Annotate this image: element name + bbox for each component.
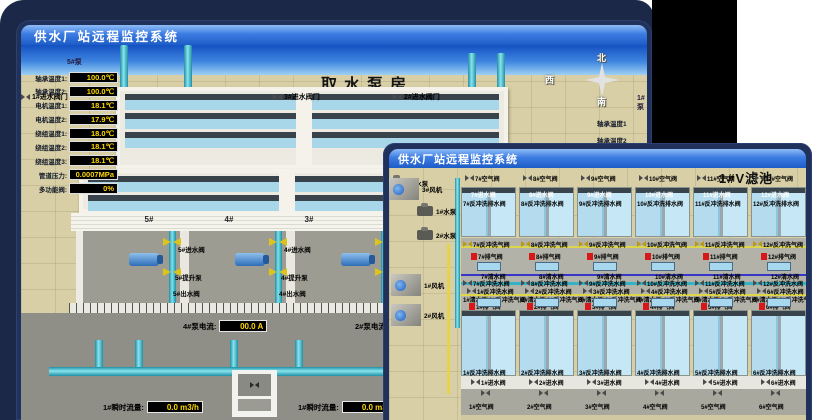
exhaust-valve-label: 11#排气阀 xyxy=(710,252,738,261)
exhaust-valve-label: 7#排气阀 xyxy=(478,252,503,261)
backwash-water-valve-icon[interactable] xyxy=(583,288,592,295)
telemetry-row: 绕组温度1: 18.0℃ xyxy=(27,128,131,139)
bay-number-row: 5# 4# 3# 2# xyxy=(109,215,429,224)
pump-bay: 5#进水阀 5#提升泵 5#出水阀 xyxy=(83,231,189,303)
telemetry-label: 多功能阀: xyxy=(27,184,69,194)
branch-pipe xyxy=(295,340,303,369)
instrument-box[interactable] xyxy=(477,298,501,307)
lift-pump-icon[interactable] xyxy=(129,253,159,266)
air-valve-icon[interactable] xyxy=(655,390,664,397)
water-pipe xyxy=(455,178,460,328)
air-valve-icon[interactable] xyxy=(755,175,764,182)
backwash-air-valve-icon[interactable] xyxy=(521,241,530,248)
exhaust-valve-label: 12#排气阀 xyxy=(768,252,796,261)
riser-pipe xyxy=(184,45,192,91)
compass-north: 北 xyxy=(597,51,606,64)
basin-divider xyxy=(279,169,295,213)
backwash-blower: 2#风机 xyxy=(391,304,444,326)
telemetry-row: 管道压力: 0.0007MPa xyxy=(27,169,131,180)
backwash-pump: 1#水泵 xyxy=(417,206,456,216)
backwash-air-valve-label: 9#反冲洗气阀 xyxy=(589,240,626,249)
exhaust-valve: 10#排气阀 xyxy=(645,252,680,261)
backwash-air-valve: 8#反冲洗气阀 xyxy=(521,240,568,249)
inlet-valve-icon[interactable] xyxy=(645,379,654,386)
air-pipe xyxy=(447,244,450,394)
air-valve-label: 8#空气阀 xyxy=(533,174,558,183)
telemetry-label: 绕组温度2: xyxy=(27,142,69,152)
backwash-equipment-column: 1#水泵 2#水泵 3#水泵 xyxy=(389,178,459,338)
telemetry-value: 18.1℃ xyxy=(69,141,118,152)
backwash-drain-valve-label: 2#反冲洗排水阀 xyxy=(521,368,564,377)
backwash-air-valve-icon[interactable] xyxy=(579,241,588,248)
filter-pool xyxy=(751,310,806,376)
instrument-box[interactable] xyxy=(651,262,675,271)
telemetry-row: 轴承温度2: 100.0℃ xyxy=(27,86,131,97)
exhaust-valve-icon[interactable] xyxy=(701,303,707,310)
backwash-air-valve-label: 8#反冲洗气阀 xyxy=(531,240,568,249)
branch-pipe xyxy=(95,340,103,369)
filter-column: 11#空气阀 11#进水阀 11#反冲洗排水阀 11#反冲洗气阀 xyxy=(693,174,748,420)
instrument-box[interactable] xyxy=(593,298,617,307)
pump5-telemetry-panel: 5#泵 轴承温度1: 100.0℃ 轴承温度2: 100.0℃ xyxy=(27,57,131,197)
inlet-valve-label: 5#进水阀 xyxy=(713,378,738,387)
instrument-box[interactable] xyxy=(767,262,791,271)
exhaust-valve-icon[interactable] xyxy=(761,253,767,260)
exhaust-valve: 12#排气阀 xyxy=(761,252,796,261)
filter-column: 8#空气阀 8#进水阀 8#反冲洗排水阀 8#反冲洗气阀 8 xyxy=(519,174,574,420)
telemetry-label: 绕组温度1: xyxy=(27,128,69,138)
lift-pump-icon[interactable] xyxy=(235,253,265,266)
backwash-air-valve-label: 12#反冲洗气阀 xyxy=(763,240,803,249)
telemetry-row: 多功能阀: 0% xyxy=(27,183,131,194)
inlet-gate: 2#进水阀门 xyxy=(393,92,440,102)
backwash-air-valve-label: 11#反冲洗气阀 xyxy=(705,240,745,249)
air-valve-label: 9#空气阀 xyxy=(591,174,616,183)
inlet-valve-label: 11#进水阀 xyxy=(703,190,731,199)
inlet-valve-icon[interactable] xyxy=(471,379,480,386)
air-valve-label: 4#空气阀 xyxy=(643,402,668,411)
pump-icon[interactable] xyxy=(417,230,433,240)
filter-columns: 7#空气阀 7#进水阀 7#反冲洗排水阀 7#反冲洗气阀 7 xyxy=(461,174,806,420)
air-valve: 8#空气阀 xyxy=(523,174,558,183)
inlet-gate: 3#进水阀门 xyxy=(273,92,320,102)
exhaust-valve-icon[interactable] xyxy=(643,303,649,310)
front-window-scene: 1#V滤池 1#水泵 2#水泵 xyxy=(389,168,806,420)
air-valve-icon[interactable] xyxy=(481,390,490,397)
pump5-panel-rows: 轴承温度1: 100.0℃ 轴承温度2: 100.0℃ 电机温度1: 18.1℃ xyxy=(27,72,131,194)
backwash-water-valve-icon[interactable] xyxy=(525,288,534,295)
backwash-water-valve-icon[interactable] xyxy=(637,280,646,287)
filter-column: 9#空气阀 9#进水阀 9#反冲洗排水阀 9#反冲洗气阀 9 xyxy=(577,174,632,420)
backwash-water-valve-icon[interactable] xyxy=(467,288,476,295)
telemetry-label: 轴承温度2: xyxy=(27,86,69,96)
backwash-drain-valve-label: 7#反冲洗排水阀 xyxy=(463,199,506,208)
exhaust-valve: 11#排气阀 xyxy=(703,252,738,261)
backwash-water-valve-icon[interactable] xyxy=(579,280,588,287)
cabinet-base xyxy=(238,399,271,411)
air-valve-icon[interactable] xyxy=(465,175,474,182)
pump-label: 1#水泵 xyxy=(436,206,456,216)
backwash-drain-valve-label: 10#反冲洗排水阀 xyxy=(637,199,683,208)
filter-pool xyxy=(577,310,632,376)
backwash-air-valve-icon[interactable] xyxy=(463,241,472,248)
scada-desktop: 供水厂站远程监控系统 取水泵房 3#进水阀门 xyxy=(0,0,815,420)
telemetry-row: 绕组温度3: 18.1℃ xyxy=(27,155,131,166)
inlet-valve-icon[interactable] xyxy=(761,379,770,386)
blower-icon[interactable] xyxy=(391,304,421,326)
inlet-valve: 2#进水阀 xyxy=(529,378,564,387)
air-valve: 12#空气阀 xyxy=(755,174,793,183)
flow-readout: 1#瞬时流量: 0.0 m3/h xyxy=(103,401,203,413)
telemetry-value: 18.1℃ xyxy=(69,155,118,166)
inlet-valve-label: 10#进水阀 xyxy=(645,190,673,199)
backwash-water-valve-icon[interactable] xyxy=(463,280,472,287)
telemetry-label: 绕组温度3: xyxy=(27,156,69,166)
bay-number: 4# xyxy=(189,215,269,224)
air-valve-label: 3#空气阀 xyxy=(585,402,610,411)
air-valve: 9#空气阀 xyxy=(581,174,616,183)
filter-pool xyxy=(693,310,748,376)
backwash-drain-valve-label: 1#反冲洗排水阀 xyxy=(463,368,506,377)
instrument-box[interactable] xyxy=(709,262,733,271)
air-valve-label: 1#空气阀 xyxy=(469,402,494,411)
filter-column: 7#空气阀 7#进水阀 7#反冲洗排水阀 7#反冲洗气阀 7 xyxy=(461,174,516,420)
telemetry-value: 100.0℃ xyxy=(69,72,118,83)
backwash-air-valve-label: 7#反冲洗气阀 xyxy=(473,240,510,249)
backwash-air-valve: 9#反冲洗气阀 xyxy=(579,240,626,249)
backwash-drain-valve-label: 12#反冲洗排水阀 xyxy=(753,199,799,208)
air-valve-label: 2#空气阀 xyxy=(527,402,552,411)
branch-pipe xyxy=(230,340,238,369)
exhaust-valve-icon[interactable] xyxy=(471,253,477,260)
backwash-air-valve-icon[interactable] xyxy=(637,241,646,248)
instrument-box[interactable] xyxy=(767,298,791,307)
backwash-drain-valve-label: 4#反冲洗排水阀 xyxy=(637,368,680,377)
backwash-drain-valve-label: 3#反冲洗排水阀 xyxy=(579,368,622,377)
backwash-water-valve-icon[interactable] xyxy=(521,280,530,287)
telemetry-value: 18.0℃ xyxy=(69,128,118,139)
backwash-water-valve-icon[interactable] xyxy=(641,288,650,295)
back-window-title: 供水厂站远程监控系统 xyxy=(34,26,179,45)
blower-label: 2#风机 xyxy=(424,310,444,320)
filter-cell-grid: 7#空气阀 7#进水阀 7#反冲洗排水阀 7#反冲洗气阀 7 xyxy=(461,174,806,420)
air-valve-label: 6#空气阀 xyxy=(759,402,784,411)
backwash-water-valve-icon[interactable] xyxy=(699,288,708,295)
exhaust-valve-icon[interactable] xyxy=(703,253,709,260)
exhaust-valve-label: 9#排气阀 xyxy=(594,252,619,261)
backwash-drain-valve-label: 5#反冲洗排水阀 xyxy=(695,368,738,377)
air-valve-label: 5#空气阀 xyxy=(701,402,726,411)
backwash-blower: 3#风机 xyxy=(389,178,442,200)
blower-icon[interactable] xyxy=(391,274,421,296)
backwash-pump: 2#水泵 xyxy=(417,230,456,240)
filter-pool xyxy=(519,310,574,376)
backwash-air-valve: 10#反冲洗气阀 xyxy=(637,240,687,249)
blower-label: 1#风机 xyxy=(424,280,444,290)
air-valve: 7#空气阀 xyxy=(465,174,500,183)
exhaust-valve-icon[interactable] xyxy=(469,303,475,310)
exhaust-valve-icon[interactable] xyxy=(529,253,535,260)
pump-label: 2#水泵 xyxy=(436,230,456,240)
inlet-gate-label: 3#进水阀门 xyxy=(284,92,320,102)
telemetry-value: 100.0℃ xyxy=(69,86,118,97)
inlet-valve-label: 6#进水阀 xyxy=(771,378,796,387)
air-valve-icon[interactable] xyxy=(581,175,590,182)
telemetry-row: 轴承温度1: 100.0℃ xyxy=(27,72,131,83)
air-valve-icon[interactable] xyxy=(639,175,648,182)
backwash-blower: 1#风机 xyxy=(391,274,444,296)
gate-valve-icon[interactable] xyxy=(393,94,402,101)
air-valve-icon[interactable] xyxy=(771,390,780,397)
telemetry-label: 电机温度1: xyxy=(27,100,69,110)
telemetry-value: 0% xyxy=(69,183,118,194)
front-window-title: 供水厂站远程监控系统 xyxy=(398,151,518,167)
inlet-valve-label: 12#进水阀 xyxy=(761,190,789,199)
flow-label: 1#瞬时流量: xyxy=(298,402,339,413)
bay-number: 3# xyxy=(269,215,349,224)
telemetry-value: 18.1℃ xyxy=(69,100,118,111)
air-valve-icon[interactable] xyxy=(597,390,606,397)
exhaust-valve-icon[interactable] xyxy=(645,253,651,260)
inlet-valve-label: 9#进水阀 xyxy=(587,190,612,199)
flow-label: 1#瞬时流量: xyxy=(103,402,144,413)
exhaust-valve-icon[interactable] xyxy=(759,303,765,310)
inlet-valve-label: 2#进水阀 xyxy=(539,378,564,387)
flow-meter-icon xyxy=(238,374,271,396)
exhaust-valve: 8#排气阀 xyxy=(529,252,561,261)
instrument-box[interactable] xyxy=(709,298,733,307)
branch-pipe xyxy=(135,340,143,369)
exhaust-valve: 9#排气阀 xyxy=(587,252,619,261)
inlet-valve-label: 8#进水阀 xyxy=(529,190,554,199)
backwash-air-valve-icon[interactable] xyxy=(753,241,762,248)
exhaust-valve-icon[interactable] xyxy=(585,303,591,310)
exhaust-valve-icon[interactable] xyxy=(587,253,593,260)
exhaust-valve: 7#排气阀 xyxy=(471,252,503,261)
telemetry-label: 管道压力: xyxy=(27,170,69,180)
telemetry-label: 轴承温度1 xyxy=(597,118,647,128)
water-channel xyxy=(125,113,499,129)
flow-meter-cabinet[interactable] xyxy=(232,370,277,417)
backwash-air-valve-label: 10#反冲洗气阀 xyxy=(647,240,687,249)
backwash-water-valve-icon[interactable] xyxy=(757,288,766,295)
backwash-drain-valve-label: 8#反冲洗排水阀 xyxy=(521,199,564,208)
backwash-air-valve: 11#反冲洗气阀 xyxy=(695,240,745,249)
filter-column: 10#空气阀 10#进水阀 10#反冲洗排水阀 10#反冲洗气阀 xyxy=(635,174,690,420)
compass-west: 西 xyxy=(545,73,554,86)
inlet-valve: 4#进水阀 xyxy=(645,378,680,387)
air-valve-label: 7#空气阀 xyxy=(475,174,500,183)
back-window-titlebar[interactable]: 供水厂站远程监控系统 xyxy=(21,25,647,45)
instrument-box[interactable] xyxy=(593,262,617,271)
gate-valve-icon[interactable] xyxy=(273,94,282,101)
pump1-panel-header: 1#泵 xyxy=(637,95,647,112)
instrument-box[interactable] xyxy=(477,262,501,271)
inlet-gate-label: 2#进水阀门 xyxy=(404,92,440,102)
backwash-water-valve-icon[interactable] xyxy=(753,280,762,287)
telemetry-row: 电机温度2: 17.9℃ xyxy=(27,114,131,125)
inlet-valve-label: 1#进水阀 xyxy=(481,378,506,387)
pump5-panel-header: 5#泵 xyxy=(67,57,131,67)
inlet-valve-icon[interactable] xyxy=(703,379,712,386)
air-valve-label: 12#空气阀 xyxy=(765,174,793,183)
air-valve-label: 10#空气阀 xyxy=(649,174,677,183)
pump-current-value: 00.0 A xyxy=(219,320,267,332)
air-valve-icon[interactable] xyxy=(697,175,706,182)
backwash-air-valve: 7#反冲洗气阀 xyxy=(463,240,510,249)
exhaust-valve-icon[interactable] xyxy=(527,303,533,310)
telemetry-value: 0.0007MPa xyxy=(69,169,118,180)
air-valve: 11#空气阀 xyxy=(697,174,735,183)
front-window-titlebar[interactable]: 供水厂站远程监控系统 xyxy=(389,149,806,168)
inlet-valve-label: 7#进水阀 xyxy=(471,190,496,199)
backwash-drain-valve-label: 11#反冲洗排水阀 xyxy=(695,199,741,208)
air-valve-icon[interactable] xyxy=(539,390,548,397)
air-valve: 10#空气阀 xyxy=(639,174,677,183)
filter-pool xyxy=(635,310,690,376)
instrument-box[interactable] xyxy=(535,262,559,271)
lift-pump-icon[interactable] xyxy=(341,253,371,266)
inlet-valve: 1#进水阀 xyxy=(471,378,506,387)
inlet-valve-icon[interactable] xyxy=(587,379,596,386)
air-valve-icon[interactable] xyxy=(523,175,532,182)
telemetry-value: 17.9℃ xyxy=(69,114,118,125)
backwash-air-valve-icon[interactable] xyxy=(695,241,704,248)
filter-column: 12#空气阀 12#进水阀 12#反冲洗排水阀 12#反冲洗气阀 xyxy=(751,174,806,420)
backwash-air-valve: 12#反冲洗气阀 xyxy=(753,240,803,249)
telemetry-label: 轴承温度1: xyxy=(27,73,69,83)
backwash-drain-valve-label: 9#反冲洗排水阀 xyxy=(579,199,622,208)
telemetry-label: 电机温度2: xyxy=(27,114,69,124)
exhaust-valve-label: 10#排气阀 xyxy=(652,252,680,261)
pump-current-readout: 4#泵电流: 00.0 A xyxy=(183,320,267,332)
telemetry-row: 绕组温度2: 18.1℃ xyxy=(27,141,131,152)
inlet-valve: 3#进水阀 xyxy=(587,378,622,387)
telemetry-row: 电机温度1: 18.1℃ xyxy=(27,100,131,111)
window-v-filter-pool: 供水厂站远程监控系统 1#V滤池 1#水泵 xyxy=(383,143,812,420)
pump-bay: 4#进水阀 4#提升泵 4#出水阀 xyxy=(189,231,295,303)
pump-icon[interactable] xyxy=(417,206,433,216)
inlet-valve-label: 3#进水阀 xyxy=(597,378,622,387)
instrument-box[interactable] xyxy=(535,298,559,307)
backwash-water-valve-icon[interactable] xyxy=(695,280,704,287)
compass-star-icon xyxy=(585,63,619,97)
blower-icon[interactable] xyxy=(389,178,419,200)
inlet-valve-label: 4#进水阀 xyxy=(655,378,680,387)
backwash-drain-valve-label: 6#反冲洗排水阀 xyxy=(753,368,796,377)
air-valve-icon[interactable] xyxy=(713,390,722,397)
inlet-valve: 5#进水阀 xyxy=(703,378,738,387)
inlet-valve-icon[interactable] xyxy=(529,379,538,386)
blower-label: 3#风机 xyxy=(422,184,442,194)
air-valve-label: 11#空气阀 xyxy=(707,174,735,183)
flow-value: 0.0 m3/h xyxy=(147,401,203,413)
filter-pool xyxy=(461,310,516,376)
exhaust-valve-label: 8#排气阀 xyxy=(536,252,561,261)
bay-number: 5# xyxy=(109,215,189,224)
pump-current-label: 4#泵电流: xyxy=(183,321,216,332)
inlet-valve: 6#进水阀 xyxy=(761,378,796,387)
instrument-box[interactable] xyxy=(651,298,675,307)
